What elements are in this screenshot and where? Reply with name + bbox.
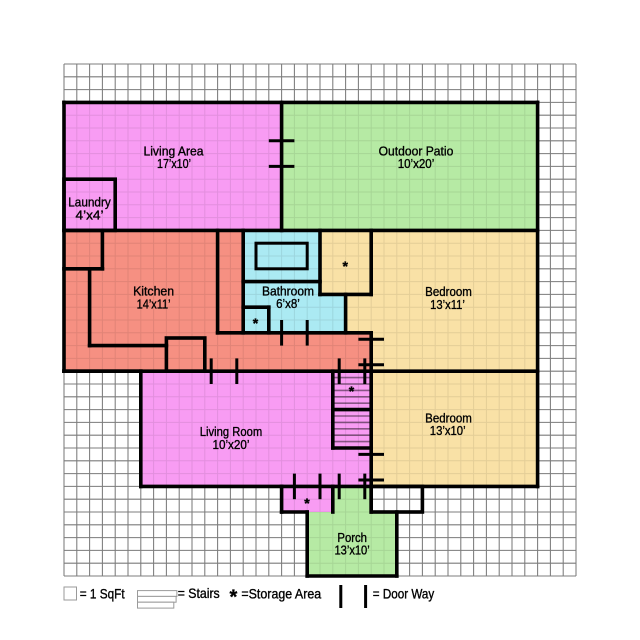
svg-text:*: * — [342, 258, 348, 274]
svg-text:= 1 SqFt: = 1 SqFt — [80, 586, 125, 601]
svg-text:14’x11’: 14’x11’ — [137, 296, 171, 311]
svg-text:*: * — [253, 315, 259, 331]
svg-text:*: * — [230, 587, 238, 609]
svg-text:= Stairs: = Stairs — [178, 586, 220, 601]
svg-text:= Door Way: = Door Way — [373, 587, 435, 602]
svg-text:*: * — [304, 495, 310, 511]
svg-text:13’x10’: 13’x10’ — [335, 543, 370, 558]
svg-text:13’x10’: 13’x10’ — [430, 423, 466, 438]
svg-text:6’x8’: 6’x8’ — [276, 296, 300, 311]
svg-text:13’x11’: 13’x11’ — [430, 297, 465, 312]
svg-text:17’x10’: 17’x10’ — [157, 156, 191, 171]
svg-text:10’x20’: 10’x20’ — [212, 437, 249, 452]
svg-text:*: * — [349, 383, 355, 399]
svg-text:10’x20’: 10’x20’ — [398, 156, 435, 171]
svg-text:=Storage Area: =Storage Area — [241, 587, 321, 602]
svg-text:4’x4’: 4’x4’ — [76, 207, 104, 222]
